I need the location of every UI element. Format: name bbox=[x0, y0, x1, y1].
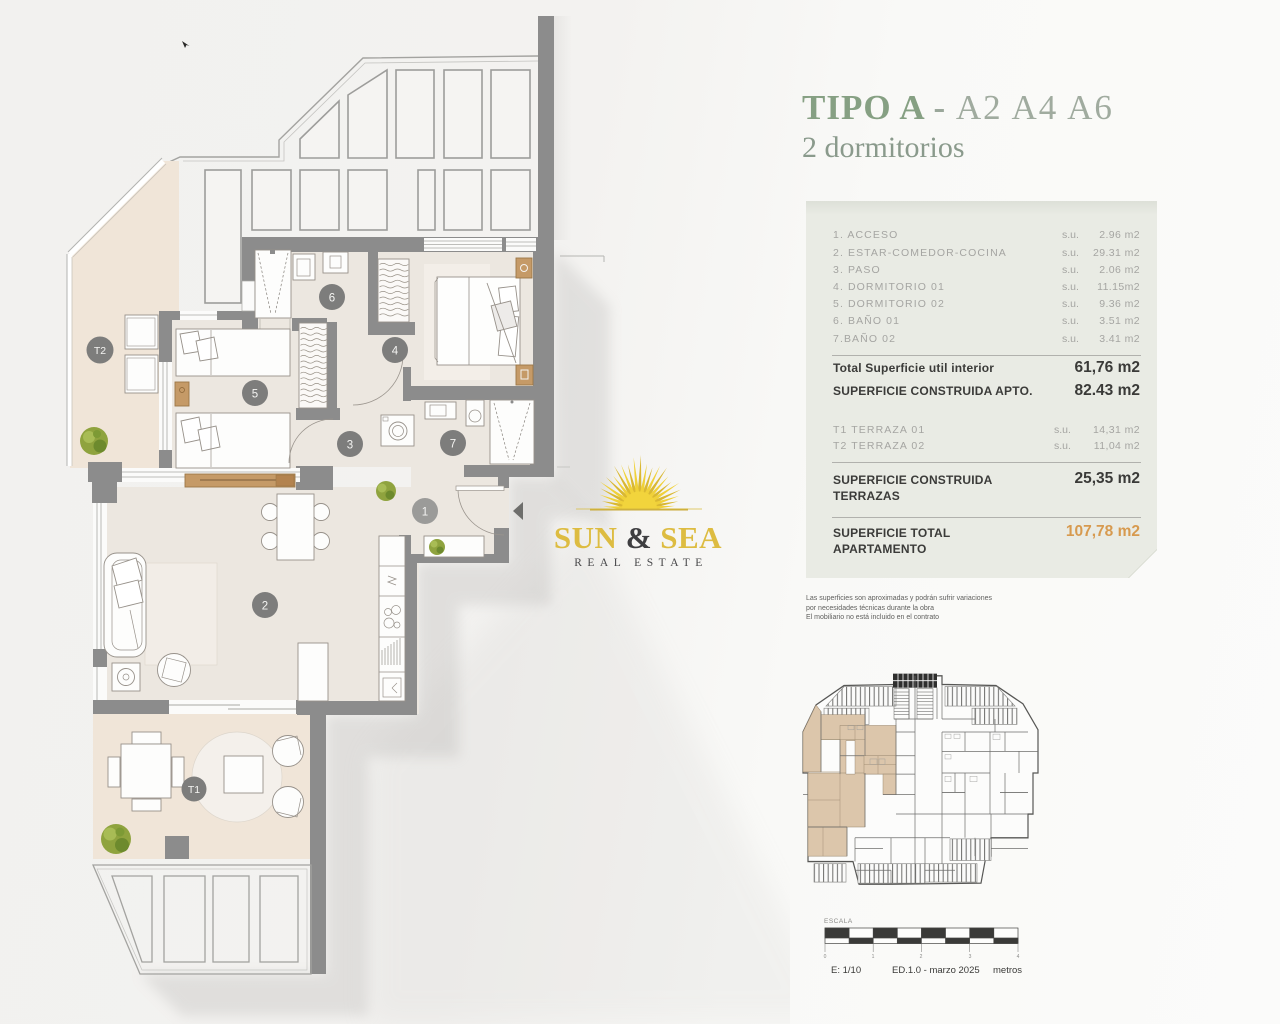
svg-text:1: 1 bbox=[872, 954, 875, 960]
svg-text:T2: T2 bbox=[94, 345, 106, 357]
svg-text:4: 4 bbox=[392, 346, 399, 358]
svg-text:7: 7 bbox=[450, 439, 456, 451]
svg-text:3: 3 bbox=[347, 440, 353, 452]
svg-text:SUN & SEA: SUN & SEA bbox=[554, 520, 722, 555]
svg-text:4: 4 bbox=[1017, 954, 1020, 960]
svg-text:1: 1 bbox=[422, 507, 428, 519]
svg-text:metros: metros bbox=[993, 965, 1022, 976]
svg-text:T1: T1 bbox=[188, 784, 200, 796]
svg-text:REAL ESTATE: REAL ESTATE bbox=[574, 557, 708, 569]
svg-text:ED.1.0 - marzo 2025: ED.1.0 - marzo 2025 bbox=[892, 965, 980, 976]
svg-text:0: 0 bbox=[824, 954, 827, 960]
svg-text:6: 6 bbox=[329, 293, 335, 305]
svg-text:2: 2 bbox=[920, 954, 923, 960]
svg-text:ESCALA: ESCALA bbox=[824, 918, 853, 925]
svg-text:3: 3 bbox=[969, 954, 972, 960]
svg-text:2: 2 bbox=[262, 601, 268, 613]
svg-text:E: 1/10: E: 1/10 bbox=[831, 965, 861, 976]
svg-text:5: 5 bbox=[252, 389, 258, 401]
